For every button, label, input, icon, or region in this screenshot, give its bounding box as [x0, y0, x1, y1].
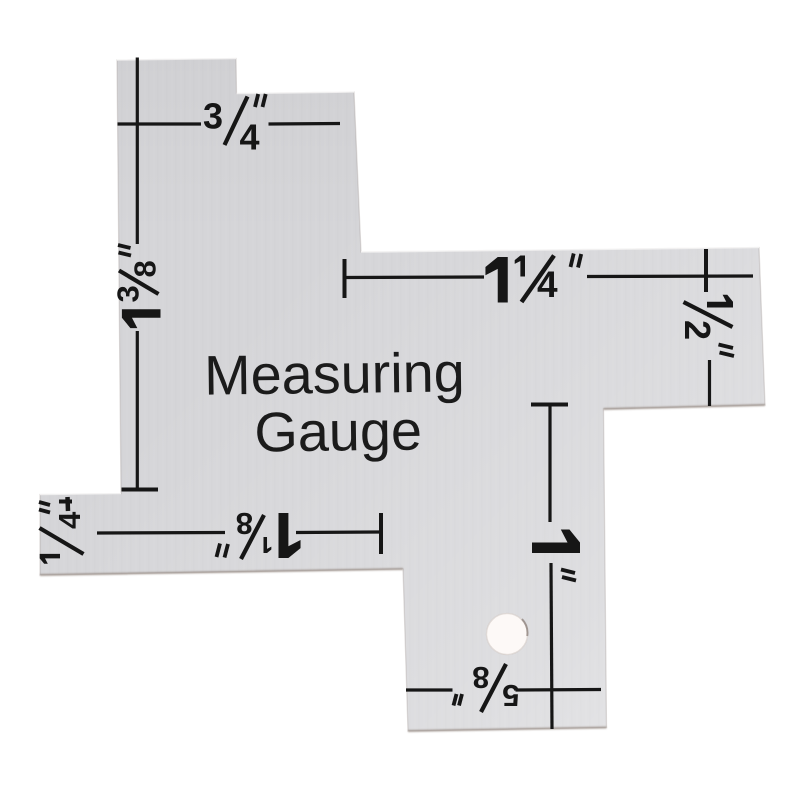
svg-text:8: 8 [236, 506, 253, 541]
svg-text:Measuring: Measuring [204, 340, 465, 406]
svg-text:4: 4 [52, 511, 87, 529]
svg-text:5: 5 [502, 678, 519, 713]
svg-text:3: 3 [111, 285, 146, 302]
svg-text:4: 4 [240, 117, 260, 158]
svg-text:2: 2 [677, 320, 718, 340]
svg-text:3: 3 [203, 96, 223, 137]
svg-text:8: 8 [472, 660, 489, 695]
svg-text:Gauge: Gauge [254, 398, 422, 463]
svg-text:4: 4 [537, 264, 558, 305]
svg-text:8: 8 [128, 260, 163, 277]
